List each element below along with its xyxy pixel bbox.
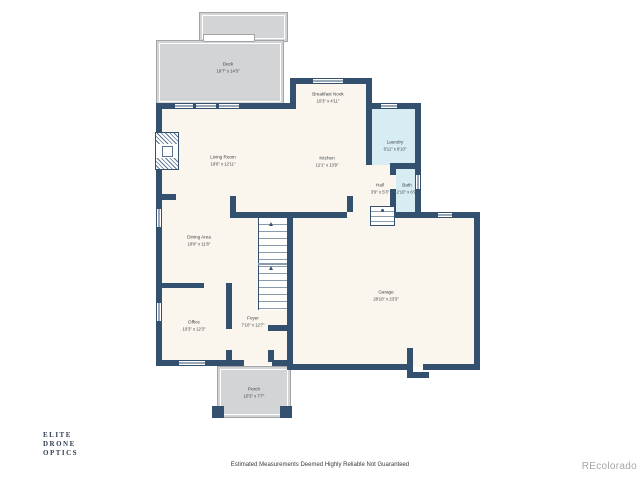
room-label-office: Office 10'3" x 12'3" [183, 319, 206, 331]
room-dims: 19'6" x 12'11" [210, 161, 236, 166]
room-name: Hall [371, 182, 389, 188]
wall-segment [290, 78, 312, 84]
wall-segment [226, 283, 232, 329]
door-hinge [391, 172, 394, 175]
room-label-dining-area: Dining Area 18'8" x 11'8" [187, 234, 211, 246]
window [312, 78, 344, 84]
room-dims: 6'11" x 8'10" [384, 146, 407, 151]
garage-left-wall [287, 212, 293, 370]
room-label-hall: Hall 3'9" x 5'3" [371, 182, 389, 194]
window [178, 360, 206, 366]
room-dims: 2'10" x 6'9" [397, 189, 418, 194]
room-name: Kitchen [316, 155, 339, 161]
room-dims: 7'10" x 12'7" [242, 322, 265, 327]
wall-stub [407, 348, 413, 364]
wall-segment [156, 360, 178, 366]
room-label-breakfast-nook: Breakfast Nook 10'3" x 4'11" [312, 91, 343, 103]
room-dims: 16'7" x 14'3" [217, 68, 240, 73]
garage-right-wall [474, 212, 480, 370]
wall-segment [407, 372, 429, 378]
wall-segment [366, 78, 372, 109]
stair-landing [258, 263, 287, 265]
room-name: Porch [244, 386, 265, 392]
laundry-floor [372, 109, 415, 165]
garage-bottom-wall [287, 364, 409, 370]
wall-segment [156, 283, 204, 288]
watermark-line: DRONE [43, 440, 78, 449]
wall-segment [156, 168, 162, 208]
wall-segment [415, 109, 421, 174]
fireplace-firebox [162, 146, 173, 157]
wall-segment [423, 364, 480, 370]
watermark-elite-drone-optics: ELITE DRONE OPTICS [43, 431, 78, 458]
stair-up-arrow [269, 222, 273, 226]
window [380, 103, 398, 109]
room-label-porch: Porch 10'3" x 7'7" [244, 386, 265, 398]
window [156, 302, 162, 322]
room-label-living-room: Living Room 19'6" x 12'11" [210, 154, 236, 166]
porch-post-left [212, 406, 224, 418]
room-name: Breakfast Nook [312, 91, 343, 97]
room-name: Dining Area [187, 234, 211, 240]
fireplace-middle [156, 144, 178, 158]
room-dims: 10'3" x 12'3" [183, 326, 206, 331]
room-dims: 18'8" x 11'8" [187, 241, 211, 246]
room-dims: 10'3" x 7'7" [244, 393, 265, 398]
fireplace [155, 132, 179, 170]
room-name: Office [183, 319, 206, 325]
wall-stub [162, 194, 176, 200]
room-dims: 28'10" x 23'3" [373, 296, 398, 301]
wall-segment [366, 109, 372, 165]
stair-up-arrow [269, 266, 273, 270]
room-label-deck: Deck 16'7" x 14'3" [217, 61, 240, 73]
wall-segment [268, 325, 287, 331]
watermark-line: OPTICS [43, 449, 78, 458]
room-dims: 10'3" x 4'11" [312, 98, 343, 103]
window [437, 212, 453, 218]
room-label-laundry: Laundry 6'11" x 8'10" [384, 139, 407, 151]
floor-plan-page: Deck 16'7" x 14'3" Breakfast Nook 10'3" … [0, 0, 640, 480]
room-name: Deck [217, 61, 240, 67]
room-label-foyer: Foyer 7'10" x 12'7" [242, 315, 265, 327]
room-label-kitchen: Kitchen 12'1" x 13'9" [316, 155, 339, 167]
wall-segment [206, 360, 244, 366]
watermark-line: ELITE [43, 431, 78, 440]
room-name: Foyer [242, 315, 265, 321]
recolorado-logo: REcolorado [582, 461, 637, 472]
wall-segment [240, 103, 296, 109]
fireplace-hatch-top [156, 133, 178, 144]
step-arrow-dot [381, 209, 384, 212]
wall-stub [347, 196, 353, 212]
fireplace-hatch-bottom [156, 158, 178, 169]
room-label-garage: Garage 28'10" x 23'3" [373, 289, 398, 301]
wall-segment [156, 286, 162, 302]
room-name: Living Room [210, 154, 236, 160]
wall-segment [268, 350, 274, 362]
room-name: Bath [397, 182, 418, 188]
porch-post-right [280, 406, 292, 418]
disclaimer-text: Estimated Measurements Deemed Highly Rel… [0, 462, 640, 468]
room-name: Garage [373, 289, 398, 295]
wall-segment [421, 212, 437, 218]
wall-segment [395, 212, 421, 218]
window-mullion [193, 104, 196, 108]
window [156, 208, 162, 228]
deck-stair-slot [203, 34, 255, 42]
room-label-bath: Bath 2'10" x 6'9" [397, 182, 418, 194]
window-mullion [216, 104, 219, 108]
window [174, 103, 240, 109]
room-dims: 3'9" x 5'3" [371, 189, 389, 194]
wall-segment [156, 103, 162, 133]
wall-stub [230, 196, 236, 214]
room-name: Laundry [384, 139, 407, 145]
wall-segment [156, 228, 162, 286]
room-dims: 12'1" x 13'9" [316, 162, 339, 167]
